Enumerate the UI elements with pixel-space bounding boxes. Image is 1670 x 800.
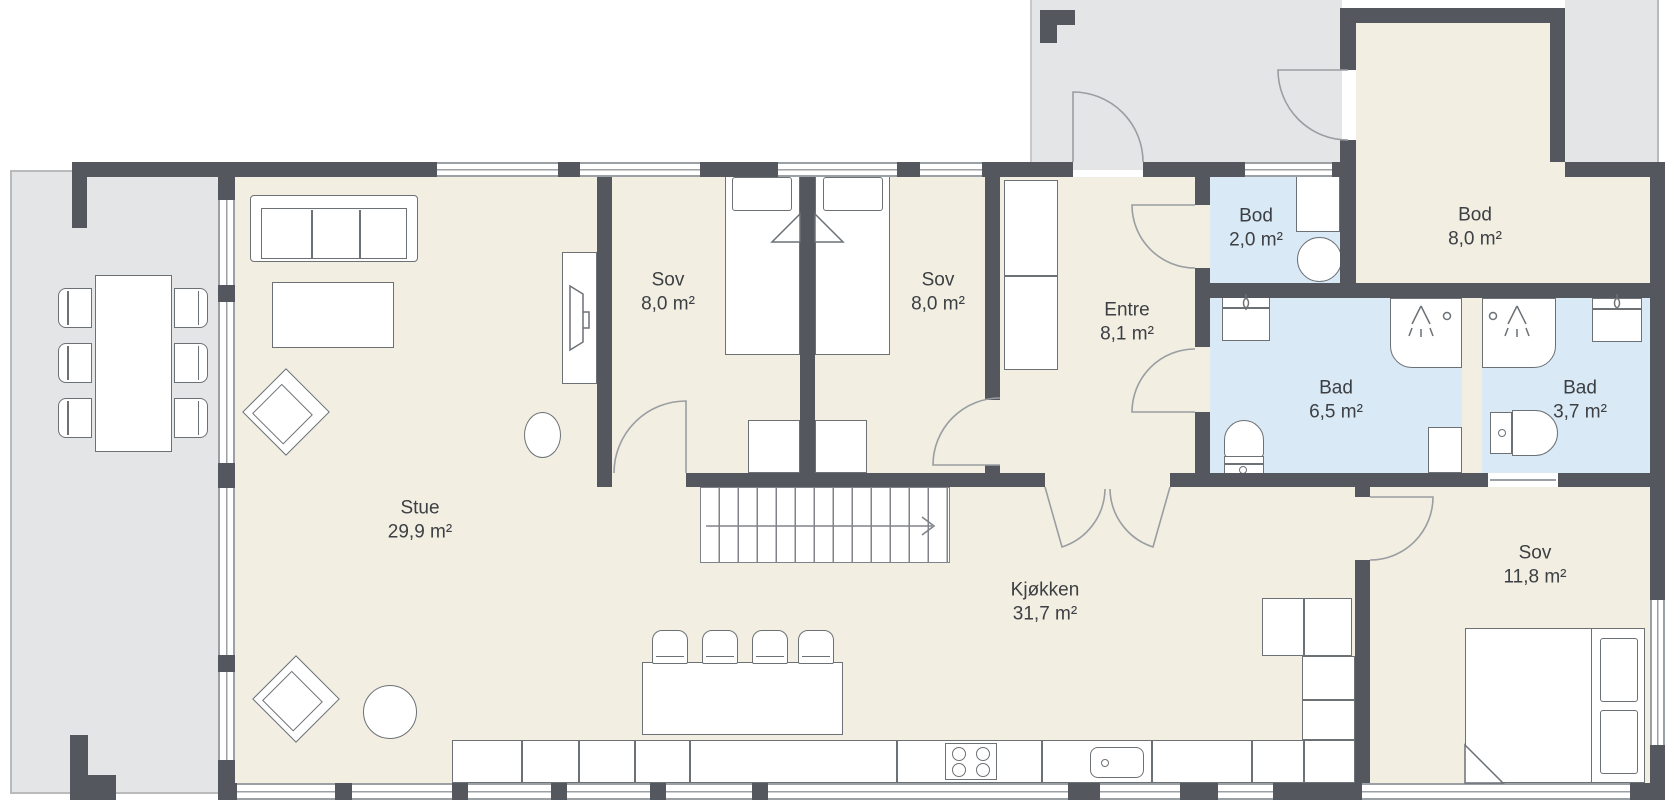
wall-segment (88, 775, 116, 800)
staircase (700, 487, 950, 563)
wall-segment (597, 162, 612, 487)
pillow (1600, 638, 1638, 702)
entrance-porch-area (1030, 0, 1342, 170)
wall-segment (1340, 8, 1356, 70)
stove-burner (976, 747, 990, 761)
room-name: Sov (641, 268, 695, 292)
room-name: Bad (1553, 376, 1607, 400)
dining-chair (58, 398, 92, 438)
window (218, 488, 235, 655)
wall-segment (218, 760, 235, 783)
tall-kitchen-unit (1262, 598, 1352, 656)
room-area: 8,0 m² (1448, 227, 1502, 251)
wall-segment (218, 655, 235, 672)
water-heater (1297, 237, 1342, 282)
stove-burner (952, 763, 966, 777)
room-area: 8,1 m² (1100, 322, 1154, 346)
room-label-sov-1: Sov 8,0 m² (641, 268, 695, 316)
kitchen-island (642, 662, 843, 735)
wall-segment (1195, 162, 1210, 205)
wall-segment (72, 177, 87, 228)
room-name: Sov (911, 268, 965, 292)
window (778, 162, 897, 177)
stove-burner (952, 747, 966, 761)
wall-segment (218, 177, 235, 200)
dining-table (95, 275, 172, 452)
kitchen-sink (1090, 747, 1144, 778)
room-name: Entre (1100, 298, 1154, 322)
room-area: 31,7 m² (1011, 602, 1080, 626)
wall-segment (1210, 473, 1650, 487)
window (1650, 600, 1665, 745)
wall-segment (218, 463, 235, 488)
window (218, 672, 235, 760)
wall-segment (70, 735, 88, 800)
terrace-area (10, 170, 222, 794)
wall-segment (650, 783, 666, 800)
floor-bod-large-upper (1356, 23, 1550, 177)
tv-bench (562, 252, 597, 384)
room-area: 2,0 m² (1229, 228, 1283, 252)
wall-segment (1195, 412, 1210, 487)
room-label-sov-2: Sov 8,0 m² (911, 268, 965, 316)
wall-segment (985, 465, 1000, 487)
window (920, 162, 982, 177)
shower (1390, 298, 1462, 368)
room-label-kjokken: Kjøkken 31,7 m² (1011, 578, 1080, 626)
room-area: 8,0 m² (911, 292, 965, 316)
wardrobe (815, 420, 867, 473)
room-name: Bod (1229, 204, 1283, 228)
wall-segment (551, 783, 567, 800)
bar-stool (702, 630, 738, 664)
room-area: 11,8 m² (1503, 565, 1566, 589)
wall-segment (1273, 783, 1362, 800)
window (235, 783, 1650, 800)
wall-segment (1143, 162, 1245, 177)
wall-segment (218, 285, 235, 302)
wall-segment (72, 162, 437, 177)
coffee-table (272, 282, 394, 348)
dining-chair (58, 288, 92, 328)
wall-segment (1340, 8, 1565, 23)
storage-shelf (1296, 170, 1340, 232)
wall-segment (1210, 283, 1665, 298)
window (218, 302, 235, 463)
room-area: 3,7 m² (1553, 400, 1607, 424)
room-name: Kjøkken (1011, 578, 1080, 602)
dining-chair (174, 398, 208, 438)
wall-segment (452, 783, 468, 800)
side-table-round (363, 685, 417, 739)
room-name: Bod (1448, 203, 1502, 227)
room-label-bad-large: Bad 6,5 m² (1309, 376, 1363, 424)
room-label-entre: Entre 8,1 m² (1100, 298, 1154, 346)
wall-segment (558, 162, 580, 177)
toilet-tank (1490, 412, 1512, 454)
hall-closet (1004, 180, 1058, 370)
window (218, 200, 235, 285)
dining-chair (174, 343, 208, 383)
wall-segment (335, 783, 352, 800)
kitchen-counter-side (1302, 656, 1355, 740)
wall-segment (1630, 783, 1665, 800)
wall-segment (218, 783, 237, 800)
wall-segment (700, 162, 778, 177)
floor-plan: Stue 29,9 m² Sov 8,0 m² Sov 8,0 m² Entre… (0, 0, 1670, 800)
wall-segment (1355, 487, 1370, 497)
room-label-bod-large: Bod 8,0 m² (1448, 203, 1502, 251)
wall-segment (985, 162, 1000, 400)
pillow (823, 177, 883, 211)
room-name: Bad (1309, 376, 1363, 400)
stove-burner (976, 763, 990, 777)
floor-bod-large-lower (1356, 162, 1650, 283)
room-name: Sov (1503, 541, 1566, 565)
wardrobe (748, 420, 800, 473)
window (437, 162, 558, 177)
dining-chair (58, 343, 92, 383)
room-area: 8,0 m² (641, 292, 695, 316)
kitchen-counter (452, 740, 1355, 783)
room-area: 6,5 m² (1309, 400, 1363, 424)
room-label-sov-3: Sov 11,8 m² (1503, 541, 1566, 589)
window (580, 162, 700, 177)
wall-segment (1550, 8, 1565, 162)
wall-segment (1195, 268, 1210, 347)
pillow (1600, 710, 1638, 774)
room-label-bad-small: Bad 3,7 m² (1553, 376, 1607, 424)
bar-stool (652, 630, 688, 664)
wall-segment (1355, 560, 1370, 800)
side-porch-area (1565, 0, 1659, 162)
dining-chair (174, 288, 208, 328)
pillow (732, 177, 792, 211)
bath-cabinet (1428, 427, 1462, 473)
wall-segment (1340, 140, 1356, 283)
room-label-stue: Stue 29,9 m² (388, 496, 452, 544)
bar-stool (752, 630, 788, 664)
room-label-bod-small: Bod 2,0 m² (1229, 204, 1283, 252)
wall-segment (1180, 783, 1218, 800)
wall-segment (1068, 783, 1100, 800)
wall-segment (1650, 162, 1665, 600)
porch-corner-wall (1040, 10, 1057, 43)
room-name: Stue (388, 496, 452, 520)
wall-segment (897, 162, 920, 177)
bathroom-sink (1592, 298, 1642, 342)
toilet-bowl (1512, 410, 1558, 456)
bathroom-sink (1222, 297, 1270, 341)
toilet-bowl (1224, 420, 1264, 458)
side-table-oval (524, 412, 561, 458)
bar-stool (798, 630, 834, 664)
wall-segment (800, 162, 815, 487)
room-area: 29,9 m² (388, 520, 452, 544)
shower (1482, 298, 1556, 368)
window (1245, 162, 1332, 177)
sliding-door[interactable] (1488, 473, 1558, 487)
wall-segment (752, 783, 768, 800)
sofa (250, 195, 418, 262)
